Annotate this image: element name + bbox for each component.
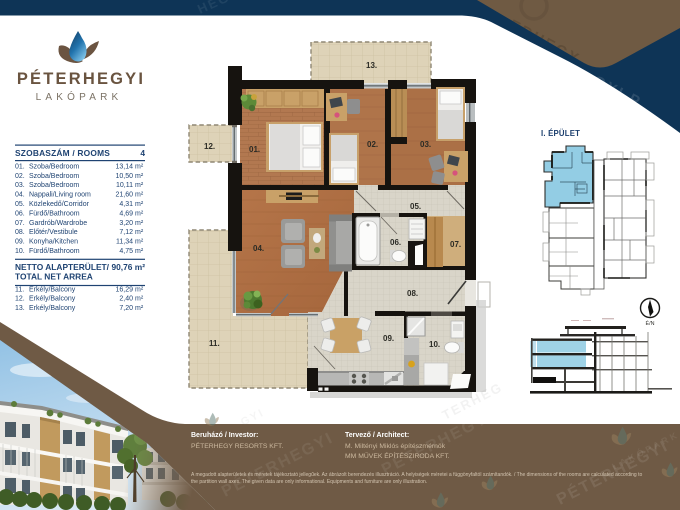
svg-text:08.: 08. — [407, 289, 418, 298]
svg-text:m²: m² — [135, 296, 144, 303]
svg-text:4,69: 4,69 — [119, 210, 133, 217]
svg-text:05.: 05. — [15, 201, 25, 208]
svg-text:Fürdő/Bathroom: Fürdő/Bathroom — [29, 210, 80, 217]
svg-text:Tervező / Architect:: Tervező / Architect: — [345, 432, 409, 439]
svg-text:Közlekedő/Corridor: Közlekedő/Corridor — [29, 201, 90, 208]
svg-text:Előtér/Vestibule: Előtér/Vestibule — [29, 229, 78, 236]
svg-text:12.: 12. — [204, 142, 215, 151]
svg-text:13,14: 13,14 — [115, 163, 133, 170]
svg-text:10,11: 10,11 — [116, 182, 133, 189]
svg-text:7,20: 7,20 — [119, 305, 133, 312]
svg-text:LAKÓPARK: LAKÓPARK — [36, 90, 123, 103]
svg-text:03.: 03. — [420, 140, 431, 149]
svg-text:m²: m² — [135, 248, 144, 255]
svg-text:4,75: 4,75 — [119, 248, 133, 255]
svg-text:Erkély/Balcony: Erkély/Balcony — [29, 305, 76, 312]
svg-text:06.: 06. — [390, 238, 401, 247]
svg-text:03.: 03. — [15, 182, 25, 189]
svg-text:m²: m² — [135, 220, 144, 227]
svg-text:TOTAL NET ARREA: TOTAL NET ARREA — [15, 271, 93, 281]
svg-text:m²: m² — [135, 239, 144, 246]
svg-text:10.: 10. — [429, 340, 440, 349]
svg-text:I. ÉPÜLET: I. ÉPÜLET — [541, 129, 580, 138]
svg-text:06.: 06. — [15, 210, 25, 217]
svg-text:04.: 04. — [253, 244, 264, 253]
svg-text:4,31: 4,31 — [119, 201, 133, 208]
svg-text:A megadott alapterületek és mé: A megadott alapterületek és méretek tájé… — [191, 472, 642, 478]
svg-text:m²: m² — [135, 192, 144, 199]
svg-text:3,20: 3,20 — [119, 220, 133, 227]
svg-text:21,60: 21,60 — [115, 192, 133, 199]
svg-text:Beruházó / Investor:: Beruházó / Investor: — [191, 432, 258, 439]
svg-text:05.: 05. — [410, 202, 421, 211]
svg-text:02.: 02. — [15, 173, 25, 180]
svg-text:04.: 04. — [15, 192, 25, 199]
svg-text:Szoba/Bedroom: Szoba/Bedroom — [29, 163, 79, 170]
svg-text:É/N: É/N — [646, 320, 655, 327]
svg-text:the partition wall axes. The g: the partition wall axes. The given data … — [191, 479, 427, 485]
svg-text:10.: 10. — [15, 248, 25, 255]
svg-text:Szoba/Bedroom: Szoba/Bedroom — [29, 173, 79, 180]
svg-text:m²: m² — [135, 173, 144, 180]
svg-text:01.: 01. — [15, 163, 25, 170]
svg-text:09.: 09. — [15, 239, 25, 246]
svg-text:7,12: 7,12 — [119, 229, 133, 236]
svg-text:09.: 09. — [383, 334, 394, 343]
svg-text:02.: 02. — [367, 140, 378, 149]
svg-text:Szoba/Bedroom: Szoba/Bedroom — [29, 182, 79, 189]
svg-text:Erkély/Balcony: Erkély/Balcony — [29, 287, 76, 294]
svg-text:m²: m² — [135, 305, 144, 312]
svg-text:m²: m² — [135, 182, 144, 189]
svg-text:90,76 m²: 90,76 m² — [111, 262, 145, 272]
svg-text:Fürdő/Bathroom: Fürdő/Bathroom — [29, 248, 80, 255]
svg-text:13.: 13. — [15, 305, 25, 312]
svg-text:11,34: 11,34 — [116, 239, 133, 246]
svg-text:11.: 11. — [209, 339, 220, 348]
svg-text:Konyha/Kitchen: Konyha/Kitchen — [29, 239, 78, 246]
svg-text:m²: m² — [135, 201, 144, 208]
svg-text:Gardrób/Wardrobe: Gardrób/Wardrobe — [29, 220, 87, 227]
svg-text:SZOBASZÁM / ROOMS: SZOBASZÁM / ROOMS — [15, 147, 110, 158]
svg-text:08.: 08. — [15, 229, 25, 236]
svg-text:2,40: 2,40 — [119, 296, 133, 303]
svg-text:01.: 01. — [249, 145, 260, 154]
svg-text:PÉTERHEGY RESORTS KFT.: PÉTERHEGY RESORTS KFT. — [191, 441, 283, 450]
svg-text:16,29: 16,29 — [115, 287, 133, 294]
svg-text:12.: 12. — [15, 296, 25, 303]
svg-text:m²: m² — [135, 287, 144, 294]
svg-text:m²: m² — [135, 210, 144, 217]
svg-text:m²: m² — [135, 163, 144, 170]
svg-text:07.: 07. — [15, 220, 25, 227]
svg-text:m²: m² — [135, 229, 144, 236]
svg-text:4: 4 — [140, 148, 145, 158]
svg-text:PÉTERHEGYI: PÉTERHEGYI — [17, 69, 145, 88]
svg-text:13.: 13. — [366, 61, 377, 70]
svg-text:10,50: 10,50 — [115, 173, 133, 180]
svg-text:07.: 07. — [450, 240, 461, 249]
svg-text:Nappali/Living room: Nappali/Living room — [29, 192, 91, 199]
svg-text:Erkély/Balcony: Erkély/Balcony — [29, 296, 76, 303]
svg-text:11.: 11. — [15, 287, 24, 294]
